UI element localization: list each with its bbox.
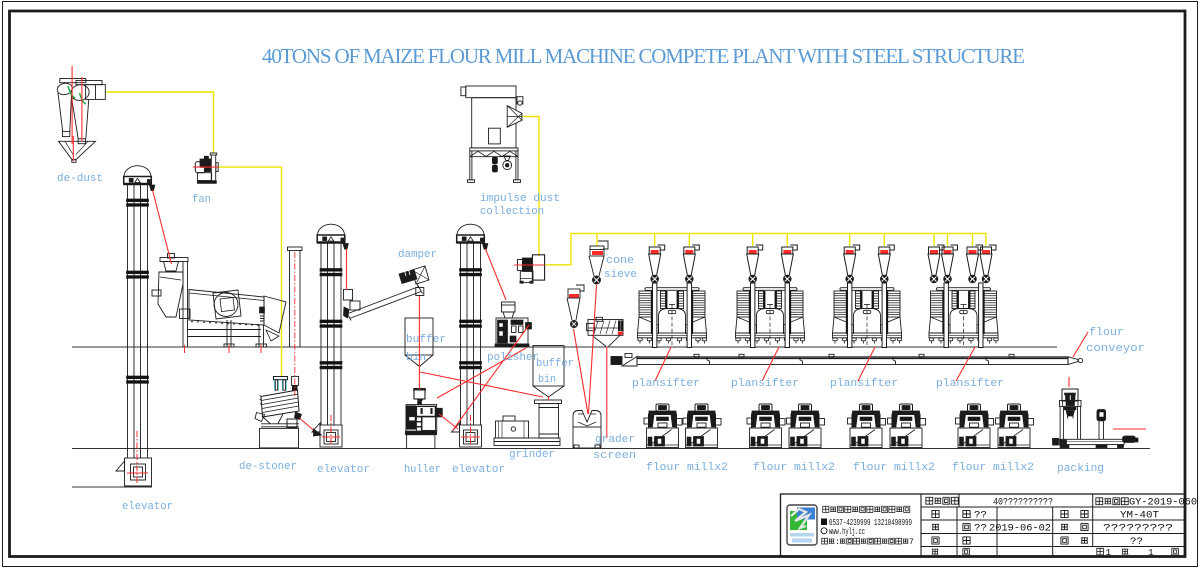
svg-text:grinder: grinder bbox=[509, 449, 555, 461]
svg-text:impulse dust: impulse dust bbox=[480, 193, 560, 205]
svg-text:elevator: elevator bbox=[122, 501, 173, 513]
svg-text:flour millx2: flour millx2 bbox=[853, 462, 935, 474]
svg-text:grader: grader bbox=[595, 434, 635, 446]
svg-text:bin: bin bbox=[406, 352, 426, 364]
svg-text:elevator: elevator bbox=[452, 464, 505, 476]
svg-text::: : bbox=[835, 538, 840, 547]
svg-text:1: 1 bbox=[1106, 547, 1112, 558]
svg-text:plansifter: plansifter bbox=[632, 378, 700, 390]
svg-text:polisher: polisher bbox=[487, 352, 539, 364]
svg-text:??: ?? bbox=[1130, 537, 1143, 548]
svg-text:flour millx2: flour millx2 bbox=[646, 462, 728, 474]
svg-text:1: 1 bbox=[1148, 547, 1154, 558]
svg-text:??: ?? bbox=[974, 524, 987, 535]
svg-text:7: 7 bbox=[909, 538, 914, 547]
svg-text:collection: collection bbox=[480, 206, 544, 218]
svg-text:flour: flour bbox=[1089, 327, 1124, 339]
svg-text:flour millx2: flour millx2 bbox=[753, 462, 835, 474]
svg-text:sieve: sieve bbox=[604, 269, 637, 281]
svg-text:www.hylj.cc: www.hylj.cc bbox=[829, 527, 865, 537]
svg-text:?????????: ????????? bbox=[1103, 523, 1173, 535]
svg-text:huller: huller bbox=[404, 464, 441, 476]
svg-text:de-dust: de-dust bbox=[57, 173, 103, 185]
svg-text:elevator: elevator bbox=[317, 464, 370, 476]
svg-text:screen: screen bbox=[593, 450, 636, 462]
svg-text:bin: bin bbox=[538, 374, 556, 386]
svg-text:2019-06-02: 2019-06-02 bbox=[989, 523, 1051, 535]
svg-text:YM-40T: YM-40T bbox=[1120, 510, 1159, 522]
svg-text:??: ?? bbox=[974, 511, 987, 522]
svg-text:plansifter: plansifter bbox=[936, 378, 1004, 390]
svg-text:flour millx2: flour millx2 bbox=[952, 462, 1034, 474]
svg-text:buffer: buffer bbox=[536, 358, 574, 370]
svg-text:cone: cone bbox=[606, 255, 634, 267]
svg-text:de-stoner: de-stoner bbox=[239, 461, 297, 473]
svg-text:packing: packing bbox=[1057, 463, 1104, 475]
svg-text:plansifter: plansifter bbox=[830, 378, 898, 390]
svg-text:fan: fan bbox=[192, 194, 211, 206]
svg-text:damper: damper bbox=[398, 249, 437, 261]
svg-text:buffer: buffer bbox=[406, 334, 446, 346]
svg-text:plansifter: plansifter bbox=[731, 378, 799, 390]
svg-text:40??????????: 40?????????? bbox=[993, 497, 1053, 509]
svg-text:40TONS OF MAIZE FLOUR MILL MAC: 40TONS OF MAIZE FLOUR MILL MACHINE COMPE… bbox=[262, 44, 1025, 68]
svg-text:GY-2019-060: GY-2019-060 bbox=[1129, 497, 1197, 509]
svg-text:conveyor: conveyor bbox=[1086, 343, 1145, 355]
